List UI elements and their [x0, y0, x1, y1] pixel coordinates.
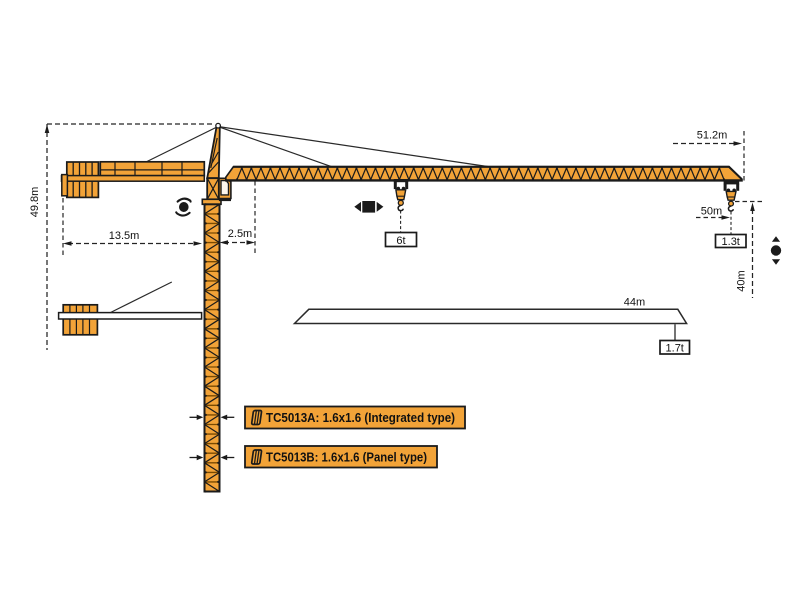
svg-text:TC5013B: 1.6x1.6 (Panel type: TC5013B: 1.6x1.6 (Panel type) [266, 450, 427, 464]
svg-text:49.8m: 49.8m [29, 187, 41, 218]
svg-text:1.3t: 1.3t [722, 236, 740, 248]
svg-text:50m: 50m [701, 206, 722, 218]
svg-text:TC5013A: 1.6x1.6 (Integrated: TC5013A: 1.6x1.6 (Integrated type) [266, 411, 455, 425]
svg-text:2.5m: 2.5m [228, 228, 252, 240]
svg-text:51.2m: 51.2m [697, 130, 728, 142]
svg-text:40m: 40m [736, 270, 748, 291]
svg-text:1.7t: 1.7t [666, 342, 684, 354]
svg-text:13.5m: 13.5m [109, 230, 140, 242]
svg-text:6t: 6t [396, 235, 405, 247]
svg-text:44m: 44m [624, 297, 645, 309]
